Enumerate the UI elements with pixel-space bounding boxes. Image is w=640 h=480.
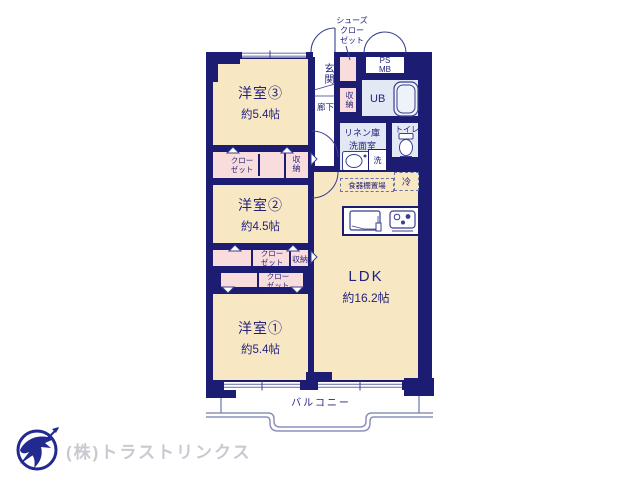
- closet-door-chevrons: [222, 147, 317, 293]
- shoe-closet-pointer-line: [346, 46, 350, 60]
- ldk-door-arc: [312, 172, 338, 198]
- entrance-step-line: [314, 84, 335, 96]
- floor-plan-page: 洋室③ 約5.4帖 クロー ゼット 収納 洋室② 約4.5帖 クロー ゼット 収…: [0, 0, 640, 480]
- company-name: (株)トラストリンクス: [66, 438, 251, 463]
- window-bedroom3-top: [242, 51, 306, 59]
- window-bedroom1-bottom: [224, 381, 300, 391]
- psmb-double-door-arcs: [364, 32, 406, 53]
- washroom-door-arc: [312, 131, 338, 157]
- balcony-label: バルコニー: [271, 394, 371, 409]
- entrance-door-arc: [311, 28, 335, 57]
- company-logo: [10, 420, 68, 478]
- window-ldk-bottom: [318, 381, 402, 391]
